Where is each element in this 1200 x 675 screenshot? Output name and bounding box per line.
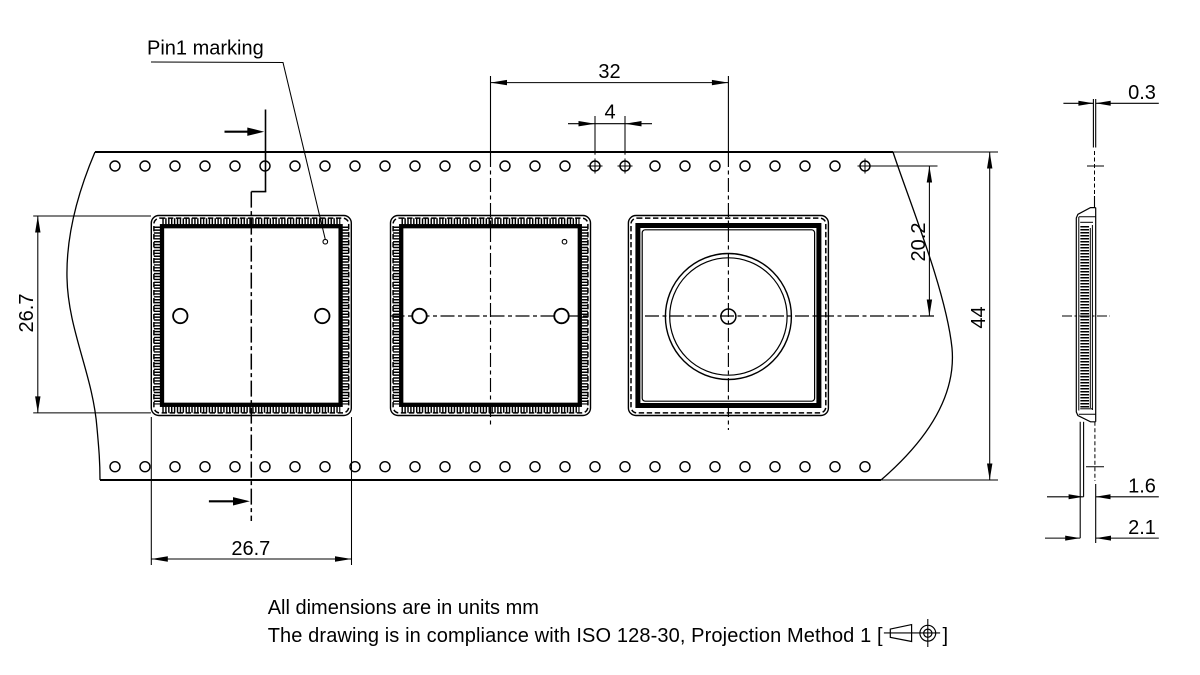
svg-text:4: 4 <box>604 102 615 124</box>
svg-text:20.2: 20.2 <box>908 223 930 262</box>
svg-text:26.7: 26.7 <box>231 538 270 560</box>
svg-text:26.7: 26.7 <box>16 294 38 333</box>
svg-text:The drawing is in compliance w: The drawing is in compliance with ISO 12… <box>268 625 883 647</box>
svg-text:2.1: 2.1 <box>1128 517 1156 539</box>
svg-text:1.6: 1.6 <box>1128 476 1156 498</box>
svg-text:32: 32 <box>598 61 620 83</box>
svg-text:]: ] <box>943 625 949 647</box>
svg-text:44: 44 <box>968 306 990 328</box>
svg-text:Pin1 marking: Pin1 marking <box>147 38 264 60</box>
svg-text:All dimensions are in units mm: All dimensions are in units mm <box>268 597 539 619</box>
svg-text:0.3: 0.3 <box>1128 82 1156 104</box>
